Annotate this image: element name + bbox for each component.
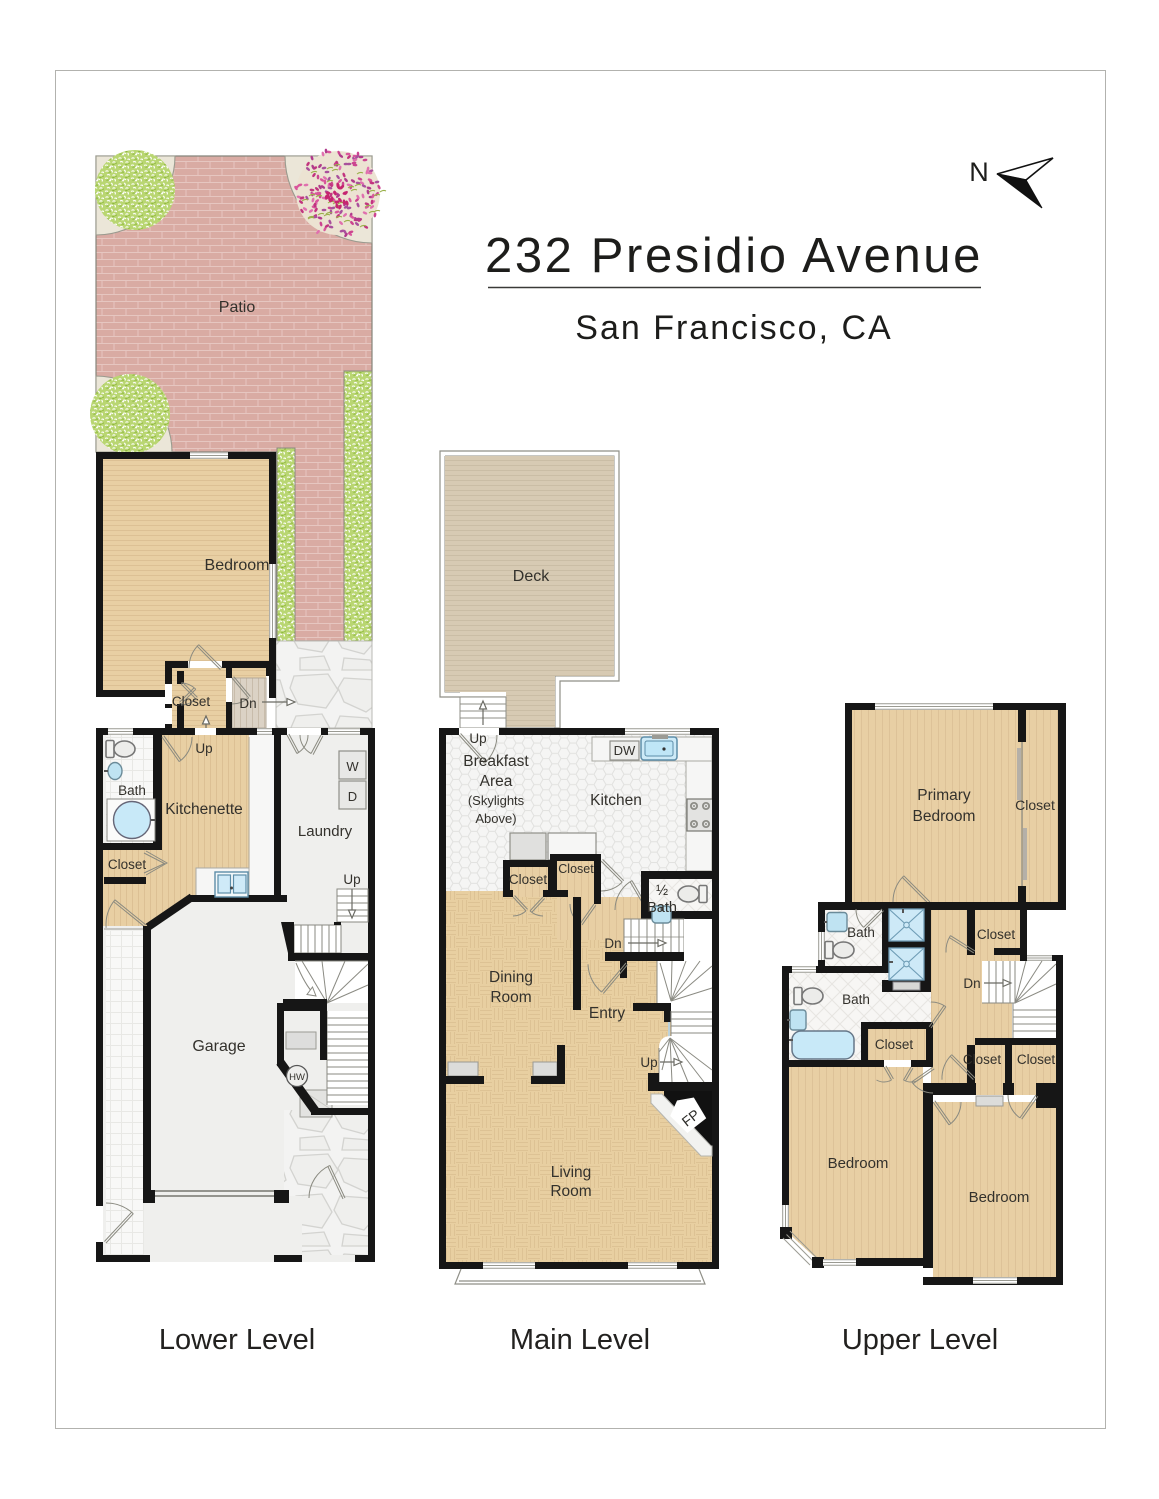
- svg-text:N: N: [969, 157, 989, 187]
- svg-text:(Skylights: (Skylights: [468, 793, 525, 808]
- svg-text:Room: Room: [550, 1183, 591, 1200]
- svg-text:Closet: Closet: [558, 862, 594, 876]
- svg-text:Bedroom: Bedroom: [828, 1155, 889, 1172]
- svg-text:Kitchenette: Kitchenette: [165, 801, 243, 818]
- svg-text:Closet: Closet: [875, 1037, 914, 1052]
- svg-text:Closet: Closet: [963, 1052, 1002, 1067]
- svg-text:232 Presidio Avenue: 232 Presidio Avenue: [485, 229, 983, 283]
- svg-text:½: ½: [656, 883, 668, 899]
- svg-text:Closet: Closet: [509, 872, 548, 887]
- svg-text:Deck: Deck: [513, 568, 550, 585]
- svg-text:Main Level: Main Level: [510, 1324, 650, 1356]
- svg-text:Closet: Closet: [108, 857, 147, 872]
- svg-text:Up: Up: [469, 731, 486, 746]
- svg-text:Patio: Patio: [219, 299, 256, 316]
- svg-text:Lower Level: Lower Level: [159, 1324, 315, 1356]
- svg-text:Upper Level: Upper Level: [842, 1324, 998, 1356]
- svg-text:Living: Living: [551, 1164, 592, 1181]
- svg-text:Breakfast: Breakfast: [463, 753, 529, 770]
- svg-text:Closet: Closet: [1017, 1052, 1056, 1067]
- svg-text:Closet: Closet: [172, 694, 211, 709]
- svg-text:Bath: Bath: [842, 992, 870, 1007]
- svg-text:Bedroom: Bedroom: [913, 808, 976, 825]
- svg-text:Up: Up: [195, 741, 212, 756]
- svg-text:DW: DW: [614, 743, 636, 758]
- svg-text:D: D: [348, 789, 357, 804]
- svg-text:Dn: Dn: [963, 976, 980, 991]
- svg-text:Bedroom: Bedroom: [205, 557, 270, 574]
- svg-text:Primary: Primary: [917, 787, 971, 804]
- svg-text:Bath: Bath: [647, 900, 677, 916]
- svg-text:Garage: Garage: [192, 1038, 245, 1055]
- svg-text:San Francisco, CA: San Francisco, CA: [575, 309, 892, 347]
- svg-text:Up: Up: [640, 1055, 657, 1070]
- svg-text:Above): Above): [475, 811, 516, 826]
- svg-text:Area: Area: [480, 773, 513, 790]
- svg-text:Closet: Closet: [1015, 797, 1055, 813]
- svg-text:Dn: Dn: [239, 696, 256, 711]
- svg-text:Dn: Dn: [604, 936, 621, 951]
- svg-text:HW: HW: [289, 1072, 305, 1083]
- svg-text:Room: Room: [490, 989, 531, 1006]
- svg-text:Bedroom: Bedroom: [969, 1189, 1030, 1206]
- svg-text:Dining: Dining: [489, 969, 533, 986]
- svg-text:Bath: Bath: [118, 783, 146, 798]
- svg-text:Up: Up: [343, 872, 360, 887]
- svg-text:Entry: Entry: [589, 1005, 625, 1022]
- svg-text:Laundry: Laundry: [298, 823, 353, 840]
- svg-text:W: W: [346, 759, 359, 774]
- svg-text:Closet: Closet: [977, 927, 1016, 942]
- svg-text:Kitchen: Kitchen: [590, 792, 642, 809]
- svg-text:Bath: Bath: [847, 925, 875, 940]
